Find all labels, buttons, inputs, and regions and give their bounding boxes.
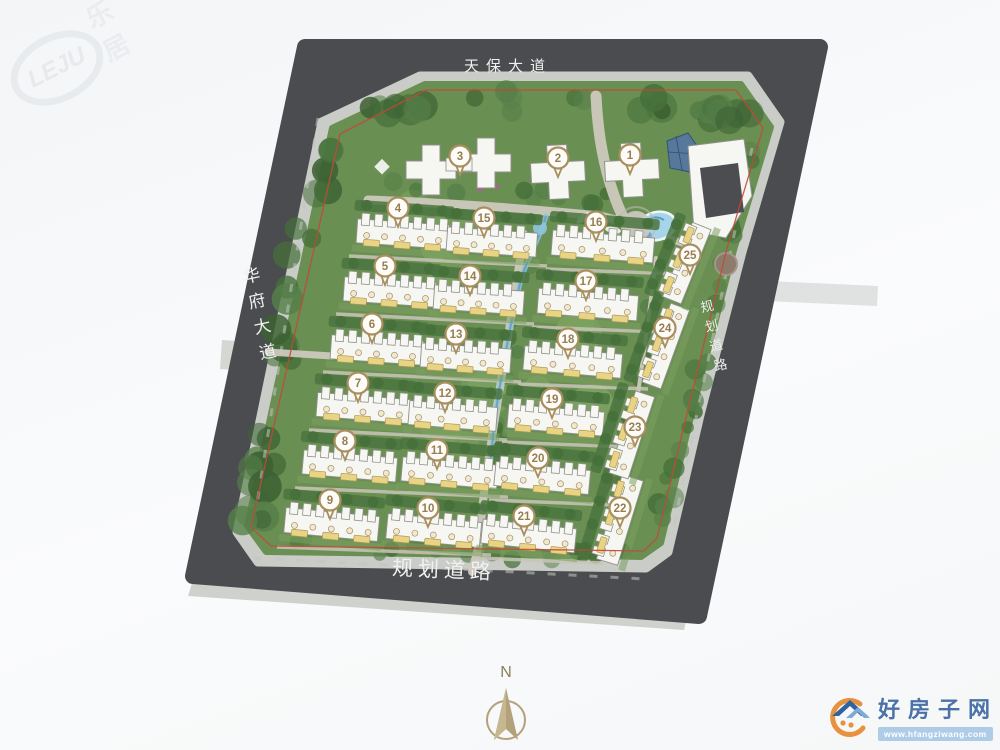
- svg-text:25: 25: [684, 250, 697, 262]
- compass-n-label: N: [478, 664, 534, 682]
- svg-text:17: 17: [580, 276, 593, 288]
- svg-text:19: 19: [546, 394, 559, 406]
- site-plan-image: 1234567891011121314151617181920212223242…: [0, 0, 1000, 750]
- svg-text:18: 18: [562, 334, 575, 346]
- svg-text:13: 13: [450, 329, 463, 341]
- svg-text:5: 5: [382, 261, 389, 273]
- svg-text:21: 21: [518, 511, 531, 523]
- house-icon: [824, 692, 874, 744]
- svg-text:8: 8: [342, 436, 349, 448]
- svg-text:11: 11: [431, 445, 444, 457]
- svg-text:3: 3: [457, 151, 463, 163]
- svg-text:12: 12: [439, 388, 452, 400]
- svg-text:23: 23: [629, 422, 642, 434]
- svg-text:6: 6: [369, 319, 375, 331]
- svg-text:16: 16: [590, 217, 603, 229]
- master-plan-map: 1234567891011121314151617181920212223242…: [0, 0, 1000, 750]
- svg-text:2: 2: [555, 153, 561, 165]
- svg-text:10: 10: [422, 503, 435, 515]
- svg-text:22: 22: [614, 503, 627, 515]
- svg-text:24: 24: [659, 323, 672, 335]
- hfangziwang-logo: 好房子网 www.hfangziwang.com: [824, 692, 998, 744]
- svg-text:15: 15: [478, 213, 491, 225]
- north-arrow-icon: [478, 682, 534, 746]
- svg-text:7: 7: [355, 378, 361, 390]
- svg-text:20: 20: [532, 453, 545, 465]
- brand-url: www.hfangziwang.com: [878, 727, 993, 741]
- compass-north-arrow: N: [478, 664, 534, 750]
- svg-text:14: 14: [464, 271, 477, 283]
- svg-text:4: 4: [395, 203, 402, 215]
- svg-text:9: 9: [327, 495, 333, 507]
- brand-name: 好房子网: [878, 692, 998, 724]
- svg-text:1: 1: [627, 150, 634, 162]
